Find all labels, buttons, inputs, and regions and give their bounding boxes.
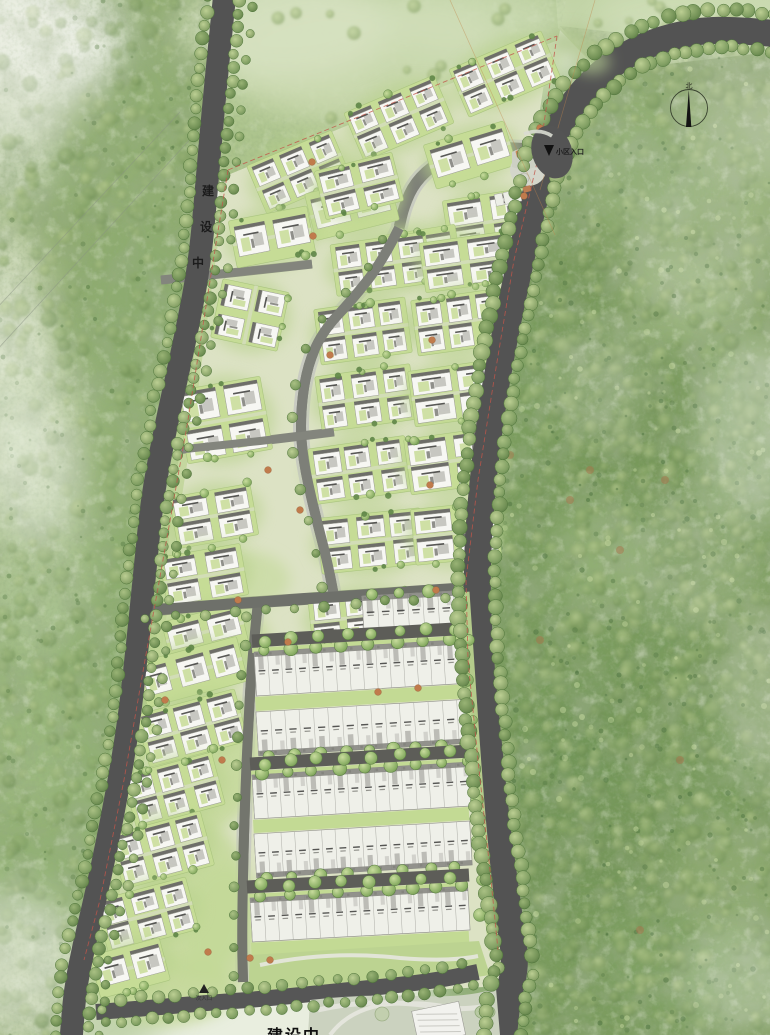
svg-text:建设中: 建设中 xyxy=(267,1026,321,1035)
svg-text:建: 建 xyxy=(201,183,215,198)
svg-text:设: 设 xyxy=(200,219,213,234)
svg-text:次入口: 次入口 xyxy=(196,994,213,1002)
svg-text:中: 中 xyxy=(192,255,204,270)
svg-text:北: 北 xyxy=(686,82,693,90)
svg-text:小区入口: 小区入口 xyxy=(555,147,584,156)
